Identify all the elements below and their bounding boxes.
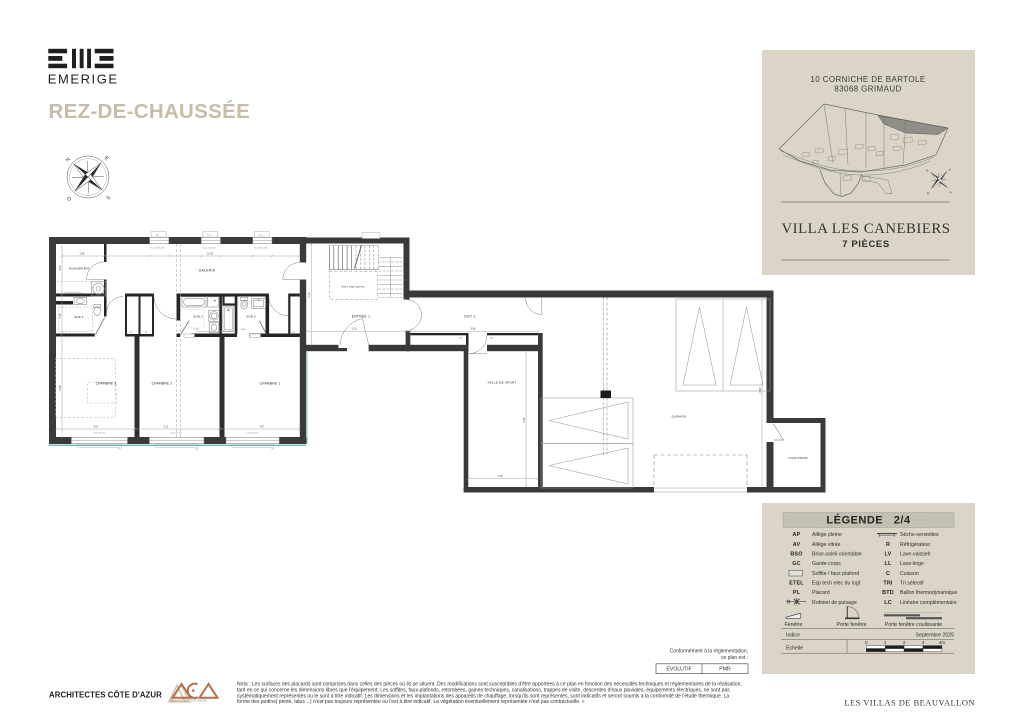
svg-text:SALLE DE SPORT: SALLE DE SPORT	[487, 381, 516, 385]
svg-text:Porte fenêtre: Porte fenêtre	[837, 622, 867, 628]
svg-text:SDB 2: SDB 2	[193, 315, 203, 319]
svg-text:bso 2,50/1,00h: bso 2,50/1,00h	[254, 247, 267, 249]
svg-text:ENTREE 1: ENTREE 1	[352, 315, 371, 319]
svg-text:Sèche-serviettes: Sèche-serviettes	[900, 532, 939, 538]
svg-text:Allège pleine: Allège pleine	[812, 532, 842, 538]
svg-text:AV: AV	[793, 542, 801, 548]
svg-text:Indice: Indice	[786, 632, 800, 638]
svg-text:1: 1	[884, 640, 887, 645]
svg-text:bso 2,50/1,00h: bso 2,50/1,00h	[151, 247, 164, 249]
svg-text:Fenêtre: Fenêtre	[785, 622, 803, 628]
svg-text:6,93: 6,93	[759, 387, 762, 392]
svg-text:10,90: 10,90	[207, 253, 214, 256]
svg-text:LV: LV	[885, 552, 892, 558]
svg-text:3: 3	[922, 640, 925, 645]
svg-text:2,96: 2,96	[80, 253, 85, 256]
svg-text:7 PIÈCES: 7 PIÈCES	[842, 239, 890, 250]
svg-text:Robinet de puisage: Robinet de puisage	[812, 600, 857, 606]
svg-text:LOCAL PISCINE: LOCAL PISCINE	[788, 457, 808, 460]
svg-text:Cuisson: Cuisson	[900, 571, 919, 577]
svg-text:PMR: PMR	[719, 667, 731, 673]
svg-text:CHAMBRE 3: CHAMBRE 3	[96, 382, 117, 386]
svg-text:Ballon thermodynamique: Ballon thermodynamique	[900, 590, 957, 596]
svg-text:Réfrigérateur: Réfrigérateur	[900, 542, 931, 548]
svg-text:5,05: 5,05	[308, 292, 311, 297]
svg-text:2,06: 2,06	[59, 265, 62, 270]
svg-text:Lave-vaissell: Lave-vaissell	[900, 552, 930, 558]
svg-text:bso 2,50/1,00h: bso 2,50/1,00h	[203, 247, 216, 249]
svg-text:GARAGE: GARAGE	[672, 415, 687, 419]
svg-text:CHAMBRE 2: CHAMBRE 2	[152, 382, 173, 386]
svg-text:ETEL: ETEL	[789, 580, 804, 586]
svg-text:sèche-linge / lave-linge: sèche-linge / lave-linge	[64, 292, 81, 294]
svg-text:ce plan est :: ce plan est :	[721, 655, 748, 661]
svg-text:Tri sélectif: Tri sélectif	[900, 580, 924, 586]
svg-text:Soffite / faux plafond: Soffite / faux plafond	[812, 571, 859, 577]
svg-text:3,46: 3,46	[498, 475, 503, 478]
svg-text:0: 0	[865, 640, 868, 645]
svg-text:arrivée étage supérieur: arrivée étage supérieur	[341, 286, 365, 289]
svg-text:ÉVOLUTIF: ÉVOLUTIF	[666, 666, 691, 673]
svg-text:83068 GRIMAUD: 83068 GRIMAUD	[834, 85, 901, 94]
svg-text:BUANDERIE: BUANDERIE	[69, 267, 89, 271]
svg-text:VILLA LES CANEBIERS: VILLA LES CANEBIERS	[782, 221, 951, 237]
svg-text:suit:1,06/1,03h: suit:1,06/1,03h	[93, 431, 105, 434]
svg-text:BTD: BTD	[882, 590, 894, 596]
svg-text:ARCHITECTES CÔTE D'AZUR: ARCHITECTES CÔTE D'AZUR	[49, 690, 162, 699]
svg-text:TRI: TRI	[883, 580, 893, 586]
svg-text:EMERIGE: EMERIGE	[48, 72, 119, 87]
svg-text:LES VILLAS DE BEAUVALLON: LES VILLAS DE BEAUVALLON	[844, 698, 975, 708]
svg-text:Septembre 2025: Septembre 2025	[916, 632, 954, 638]
svg-text:Placard: Placard	[812, 590, 830, 596]
svg-text:DGT 1: DGT 1	[464, 315, 475, 319]
svg-text:BSO: BSO	[790, 552, 802, 558]
svg-text:AP: AP	[793, 532, 801, 538]
svg-text:4,11: 4,11	[164, 426, 169, 429]
svg-text:PL: PL	[793, 590, 801, 596]
svg-text:LC: LC	[884, 600, 892, 606]
svg-text:4m: 4m	[939, 640, 946, 645]
svg-text:Allège vitrée: Allège vitrée	[812, 542, 841, 548]
svg-text:suit:1,06/1,03h: suit:1,06/1,03h	[170, 431, 182, 434]
svg-text:GC: GC	[792, 561, 801, 567]
svg-text:4,07: 4,07	[260, 426, 265, 429]
svg-text:5,96: 5,96	[471, 328, 476, 331]
svg-text:suit:1,06/1,03h: suit:1,06/1,03h	[246, 431, 258, 434]
svg-text:3,96: 3,96	[59, 385, 62, 390]
svg-text:2: 2	[903, 640, 906, 645]
svg-text:Esp tech elec du logt: Esp tech elec du logt	[812, 580, 861, 586]
svg-text:GALERIE: GALERIE	[199, 269, 216, 273]
svg-text:forme des jardins( pente, talu: forme des jardins( pente, talus…) n'est …	[237, 699, 585, 705]
svg-text:REZ-DE-CHAUSSÉE: REZ-DE-CHAUSSÉE	[49, 100, 251, 123]
svg-text:LL: LL	[885, 561, 892, 567]
svg-text:SDE 1: SDE 1	[74, 315, 84, 319]
svg-text:Linéaire complémentaire: Linéaire complémentaire	[900, 600, 957, 606]
svg-text:Garde-corps: Garde-corps	[812, 561, 841, 567]
svg-text:R: R	[886, 542, 890, 548]
svg-text:CHAMBRE 1: CHAMBRE 1	[260, 382, 281, 386]
svg-text:C: C	[886, 571, 890, 577]
svg-text:1,13: 1,13	[352, 328, 357, 331]
svg-text:Lave-linge: Lave-linge	[900, 561, 924, 567]
svg-text:10 CORNICHE DE BARTOLE: 10 CORNICHE DE BARTOLE	[810, 75, 925, 84]
svg-text:Porte fenêtre coulissante: Porte fenêtre coulissante	[885, 622, 942, 628]
svg-text:4,27: 4,27	[94, 426, 99, 429]
svg-text:Conformément à la réglementati: Conformément à la réglementation,	[670, 648, 748, 654]
svg-text:Échelle: Échelle	[786, 644, 803, 651]
svg-text:Brise-soleil orientable: Brise-soleil orientable	[812, 552, 862, 558]
svg-text:1,76: 1,76	[59, 313, 62, 318]
svg-text:SDB 3: SDB 3	[246, 315, 256, 319]
svg-text:LÉGENDE 2/4: LÉGENDE 2/4	[826, 514, 911, 527]
svg-text:5,30: 5,30	[523, 417, 526, 422]
